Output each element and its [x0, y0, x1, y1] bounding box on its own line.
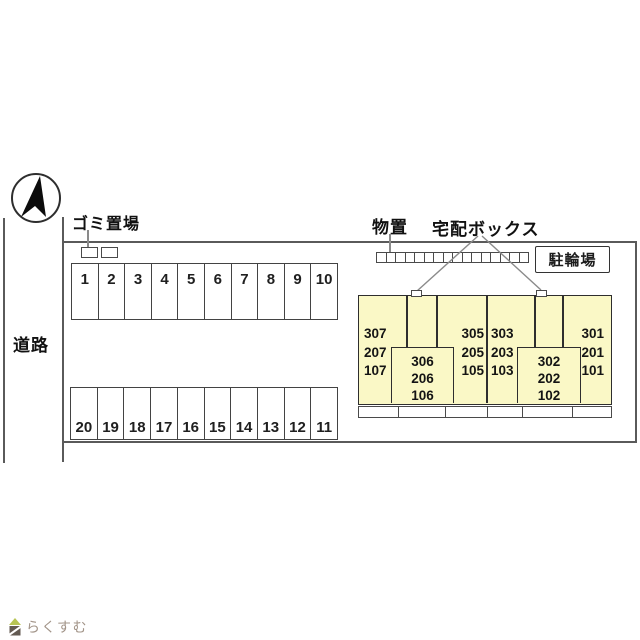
boundary-right: [635, 241, 637, 443]
storage-cell: [444, 253, 454, 262]
parking-space-20: 20: [71, 388, 98, 439]
building-wall: [436, 296, 438, 347]
entrance-cell: [359, 407, 399, 417]
logo-text: らくすむ: [26, 617, 88, 637]
parking-space-15: 15: [205, 388, 232, 439]
parking-space-12: 12: [285, 388, 312, 439]
storage-cell: [482, 253, 492, 262]
storage-cell: [387, 253, 397, 262]
storage-cell: [377, 253, 387, 262]
building-entrance-strip: [358, 406, 612, 418]
parking-space-7: 7: [232, 264, 259, 319]
entrance-cell: [446, 407, 488, 417]
garbage-area-label: ゴミ置場: [72, 210, 140, 234]
building-wall: [562, 296, 564, 347]
boundary-bottom: [63, 441, 637, 443]
entrance-cell: [573, 407, 611, 417]
garbage-box-1: [81, 247, 98, 258]
storage-cell: [463, 253, 473, 262]
parking-space-8: 8: [258, 264, 285, 319]
bicycle-parking-box: 駐輪場: [535, 246, 610, 273]
delivery-box-unit-1: [411, 290, 422, 297]
storage-cell: [406, 253, 416, 262]
entrance-cell: [488, 407, 523, 417]
road-label: 道路: [13, 331, 49, 356]
parking-space-10: 10: [311, 264, 337, 319]
garbage-box-2: [101, 247, 118, 258]
parking-space-13: 13: [258, 388, 285, 439]
delivery-box-label: 宅配ボックス: [432, 215, 540, 240]
unit-stack-306: 306 206 106: [392, 348, 453, 404]
unit-stack-left-end: 307 207 107: [364, 325, 387, 381]
parking-row-bottom: 20 19 18 17 16 15 14 13 12 11: [70, 387, 338, 440]
building-wall: [534, 296, 536, 347]
entrance-cell: [399, 407, 446, 417]
delivery-box-unit-2: [536, 290, 547, 297]
parking-space-18: 18: [124, 388, 151, 439]
storage-cell: [520, 253, 529, 262]
parking-space-16: 16: [178, 388, 205, 439]
building-center-wall: [486, 296, 488, 403]
storage-cell: [415, 253, 425, 262]
unit-box-302: 302 202 102: [517, 347, 581, 403]
boundary-top: [63, 241, 637, 243]
unit-box-306: 306 206 106: [391, 347, 454, 403]
road-edge-inner: [62, 217, 64, 462]
apartment-building: 307 207 107 305 205 105 303 203 103 301 …: [358, 295, 612, 405]
storage-cell: [396, 253, 406, 262]
storage-cell: [510, 253, 520, 262]
site-logo: らくすむ: [9, 617, 88, 637]
unit-stack-right-of-center: 303 203 103: [491, 325, 514, 381]
unit-stack-302: 302 202 102: [518, 348, 580, 404]
parking-space-9: 9: [285, 264, 312, 319]
parking-space-19: 19: [98, 388, 125, 439]
unit-stack-left-of-center: 305 205 105: [455, 325, 484, 381]
parking-space-17: 17: [151, 388, 178, 439]
garbage-leader-line: [87, 230, 89, 247]
house-icon: [9, 618, 21, 636]
entrance-cell: [523, 407, 573, 417]
storage-cell: [491, 253, 501, 262]
storage-cell: [501, 253, 511, 262]
site-plan: 道路 ゴミ置場 1 2 3 4 5 6 7 8 9 10 20 19 18 17…: [0, 0, 640, 640]
parking-space-11: 11: [311, 388, 337, 439]
bicycle-parking-label: 駐輪場: [548, 249, 596, 270]
storage-cell: [425, 253, 435, 262]
north-compass-icon: [9, 171, 63, 225]
storage-cell: [472, 253, 482, 262]
storage-leader-line: [389, 234, 391, 252]
storage-cell: [434, 253, 444, 262]
road-edge-outer: [3, 218, 5, 463]
parking-space-4: 4: [152, 264, 179, 319]
building-wall: [406, 296, 408, 347]
parking-space-14: 14: [231, 388, 258, 439]
parking-space-6: 6: [205, 264, 232, 319]
storage-cell: [453, 253, 463, 262]
parking-space-3: 3: [125, 264, 152, 319]
parking-space-5: 5: [178, 264, 205, 319]
parking-space-2: 2: [99, 264, 126, 319]
storage-locker-strip: [376, 252, 529, 263]
parking-row-top: 1 2 3 4 5 6 7 8 9 10: [71, 263, 338, 320]
parking-space-1: 1: [72, 264, 99, 319]
